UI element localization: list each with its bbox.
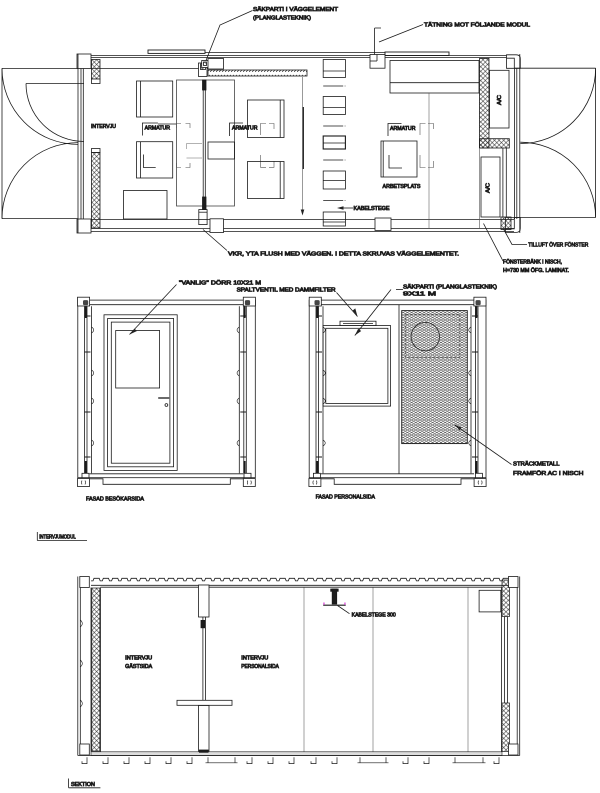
- svg-text:(PLANGLASTEKNIK): (PLANGLASTEKNIK): [253, 16, 311, 22]
- svg-text:ARMATUR: ARMATUR: [390, 126, 416, 132]
- svg-text:ARBETSPLATS: ARBETSPLATS: [383, 184, 422, 190]
- svg-text:PERSONALSIDA: PERSONALSIDA: [241, 664, 279, 670]
- svg-text:9X11 M: 9X11 M: [403, 292, 436, 298]
- svg-text:SÄKPARTI I VÄGGELEMENT: SÄKPARTI I VÄGGELEMENT: [253, 6, 339, 13]
- svg-text:VKR, YTA FLUSH MED VÄGGEN. I D: VKR, YTA FLUSH MED VÄGGEN. I DETTA SKRUV…: [228, 250, 459, 257]
- svg-text:SEKTION: SEKTION: [71, 782, 95, 788]
- svg-text:INTERVJUMODUL: INTERVJUMODUL: [39, 534, 76, 540]
- svg-text:SPALTVENTIL MED DAMMFILTER: SPALTVENTIL MED DAMMFILTER: [237, 288, 336, 294]
- svg-text:INTERVJU: INTERVJU: [241, 656, 268, 662]
- svg-text:A/C: A/C: [486, 183, 492, 193]
- svg-text:FÖNSTERBÄNK I NISCH,: FÖNSTERBÄNK I NISCH,: [503, 259, 562, 266]
- svg-text:KABELSTEGE: KABELSTEGE: [354, 206, 391, 212]
- svg-text:"VANLIG" DÖRR 10X21 M: "VANLIG" DÖRR 10X21 M: [179, 280, 261, 287]
- svg-text:FASAD PERSONALSIDA: FASAD PERSONALSIDA: [316, 494, 376, 500]
- svg-text:ARMATUR: ARMATUR: [145, 126, 171, 132]
- svg-text:FASAD BESÖKARSIDA: FASAD BESÖKARSIDA: [86, 495, 144, 502]
- svg-text:INTERVJU: INTERVJU: [125, 656, 152, 662]
- svg-text:A/C: A/C: [497, 95, 503, 105]
- svg-text:TILLUFT ÖVER FÖNSTER: TILLUFT ÖVER FÖNSTER: [528, 241, 588, 248]
- svg-text:ARMATUR: ARMATUR: [232, 126, 258, 132]
- svg-text:TÄTNING MOT FÖLJANDE MODUL: TÄTNING MOT FÖLJANDE MODUL: [424, 22, 530, 29]
- svg-text:H=730 MM ÖFG. LAMINAT.: H=730 MM ÖFG. LAMINAT.: [503, 267, 569, 274]
- svg-text:SÄKPARTI (PLANGLASTEKNIK): SÄKPARTI (PLANGLASTEKNIK): [403, 283, 497, 290]
- svg-text:GÄSTSIDA: GÄSTSIDA: [125, 663, 153, 670]
- svg-text:KABELSTEGE 300: KABELSTEGE 300: [352, 613, 396, 619]
- svg-text:STRÄCKMETALL: STRÄCKMETALL: [513, 461, 560, 468]
- svg-text:FRAMFÖR AC I NISCH: FRAMFÖR AC I NISCH: [513, 470, 584, 477]
- svg-text:INTERVJU: INTERVJU: [91, 124, 116, 130]
